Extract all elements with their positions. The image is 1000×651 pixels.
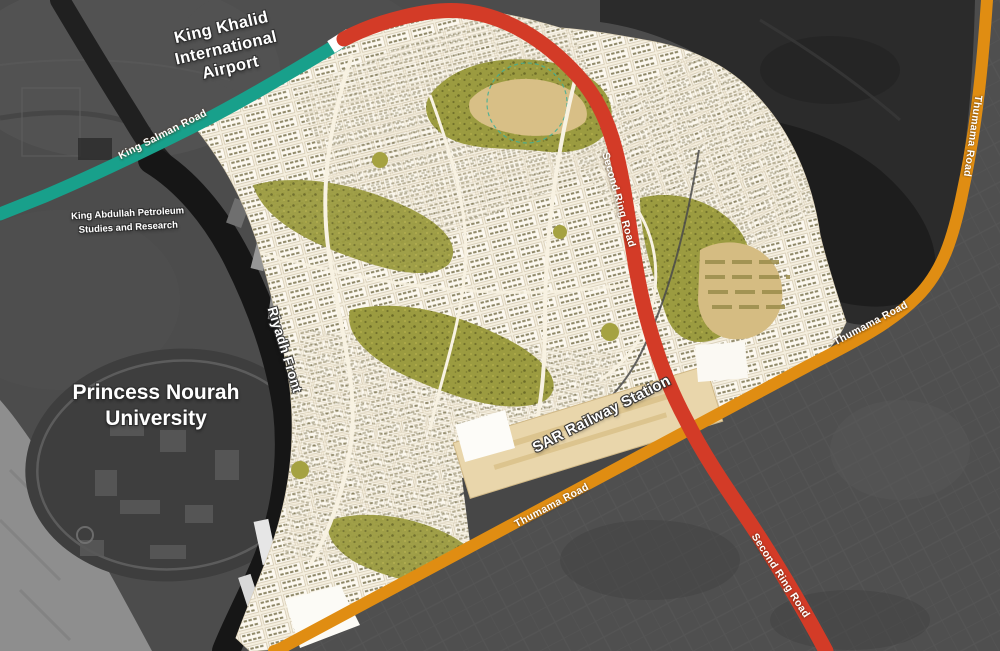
map-screenshot: King Khalid International Airport King A…	[0, 0, 1000, 651]
white-block-east	[695, 342, 748, 382]
map-canvas	[0, 0, 1000, 651]
